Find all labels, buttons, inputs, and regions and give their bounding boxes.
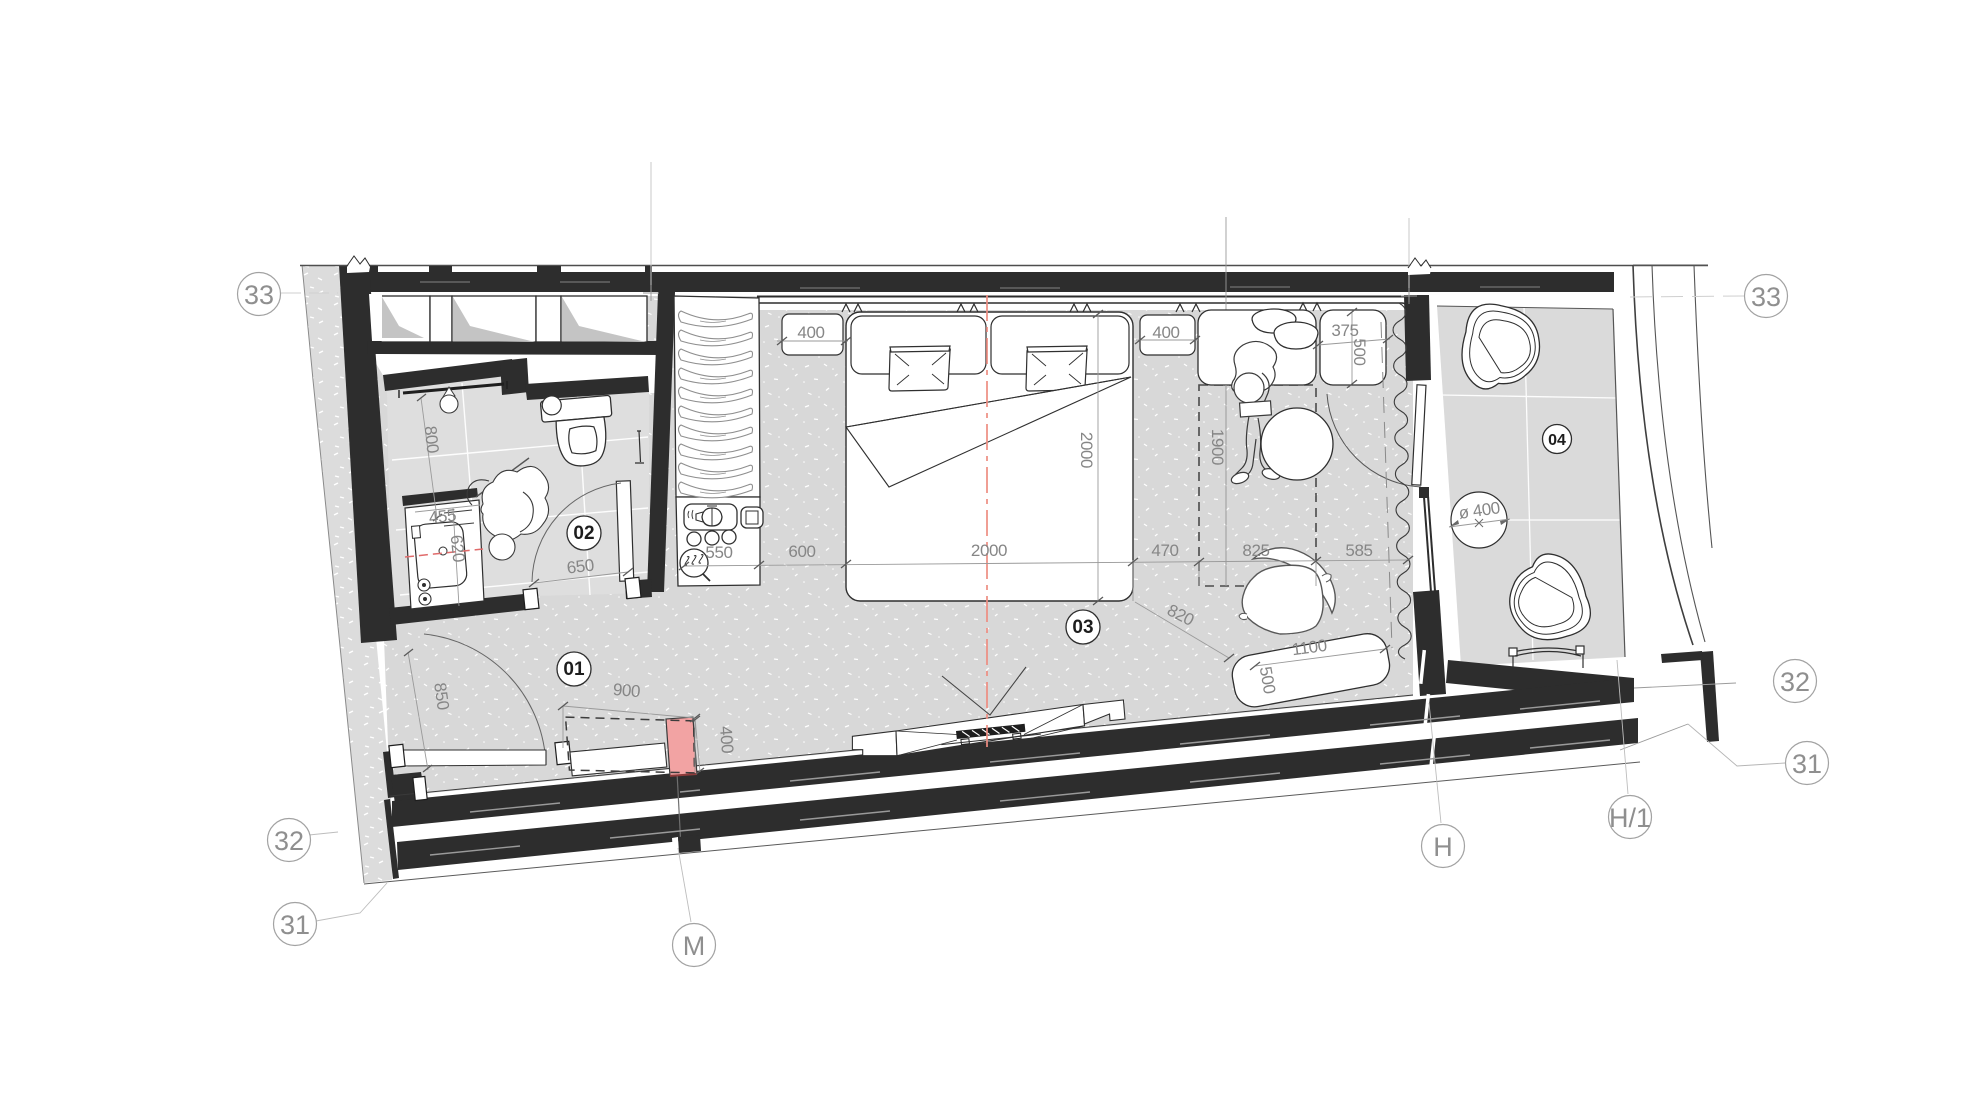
svg-text:H/1: H/1 [1609, 803, 1651, 833]
svg-text:01: 01 [563, 659, 585, 680]
svg-text:32: 32 [274, 826, 304, 856]
svg-text:900: 900 [612, 680, 641, 701]
svg-text:1900: 1900 [1208, 429, 1227, 465]
svg-text:550: 550 [705, 543, 732, 562]
svg-text:650: 650 [566, 555, 595, 577]
svg-text:375: 375 [1331, 321, 1358, 340]
svg-text:500: 500 [1350, 338, 1369, 365]
svg-text:455: 455 [428, 506, 457, 528]
svg-text:400: 400 [797, 323, 824, 342]
svg-text:04: 04 [1548, 432, 1566, 449]
svg-text:470: 470 [1151, 541, 1178, 560]
svg-text:33: 33 [244, 280, 274, 310]
svg-text:600: 600 [788, 542, 815, 561]
svg-text:31: 31 [280, 910, 310, 940]
svg-text:31: 31 [1792, 749, 1822, 779]
svg-text:02: 02 [573, 523, 594, 544]
svg-text:2000: 2000 [1077, 432, 1096, 468]
svg-text:03: 03 [1072, 617, 1093, 638]
svg-text:850: 850 [430, 681, 453, 711]
svg-text:M: M [683, 931, 706, 961]
svg-text:33: 33 [1751, 282, 1781, 312]
svg-text:2000: 2000 [971, 541, 1007, 560]
svg-text:32: 32 [1780, 667, 1810, 697]
svg-text:400: 400 [1152, 323, 1179, 342]
svg-text:400: 400 [716, 725, 737, 753]
svg-text:800: 800 [421, 425, 443, 454]
svg-text:H: H [1433, 832, 1453, 862]
svg-text:825: 825 [1242, 541, 1269, 560]
svg-text:620: 620 [447, 534, 469, 563]
svg-text:585: 585 [1345, 541, 1372, 560]
